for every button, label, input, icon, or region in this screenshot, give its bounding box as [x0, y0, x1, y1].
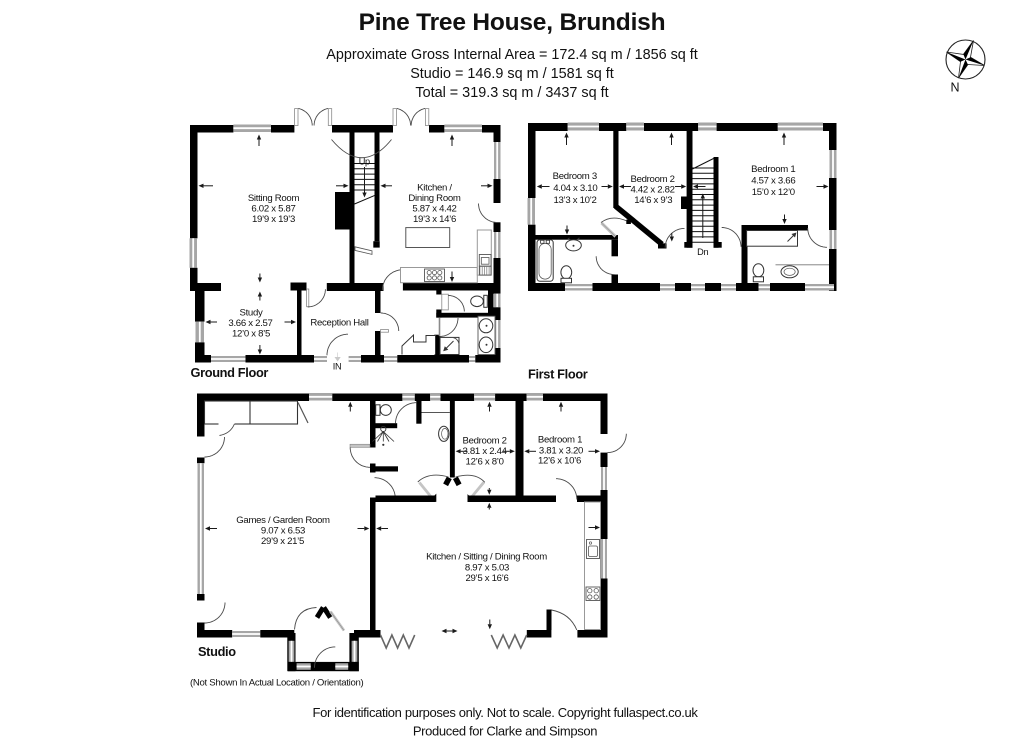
svg-text:13’3 x 10’2: 13’3 x 10’2 [553, 195, 596, 206]
svg-text:Dining Room: Dining Room [408, 193, 460, 204]
svg-text:First Floor: First Floor [528, 367, 588, 382]
svg-text:N: N [950, 81, 959, 95]
svg-text:6.02 x 5.87: 6.02 x 5.87 [251, 204, 295, 215]
svg-text:15’0 x 12’0: 15’0 x 12’0 [752, 187, 795, 198]
svg-text:4.42 x 2.82: 4.42 x 2.82 [631, 185, 675, 196]
svg-text:Produced for Clarke and Simpso: Produced for Clarke and Simpson [413, 724, 597, 739]
svg-text:Studio = 146.9 sq m / 1581 sq: Studio = 146.9 sq m / 1581 sq ft [410, 66, 614, 82]
svg-text:Sitting Room: Sitting Room [248, 193, 300, 204]
svg-text:Up: Up [359, 157, 370, 167]
svg-text:12’6 x 10’6: 12’6 x 10’6 [538, 456, 581, 467]
svg-text:Reception Hall: Reception Hall [310, 318, 368, 329]
svg-text:3.66 x 2.57: 3.66 x 2.57 [228, 318, 272, 329]
svg-text:19’9 x 19’3: 19’9 x 19’3 [252, 214, 295, 225]
svg-text:Bedroom 2: Bedroom 2 [462, 435, 506, 446]
svg-text:Kitchen /: Kitchen / [417, 183, 452, 194]
svg-text:5.87 x 4.42: 5.87 x 4.42 [412, 204, 456, 215]
svg-text:Kitchen / Sitting / Dining Roo: Kitchen / Sitting / Dining Room [426, 552, 547, 563]
svg-text:Bedroom 1: Bedroom 1 [538, 435, 582, 446]
svg-text:(Not Shown In Actual Location: (Not Shown In Actual Location / Orientat… [190, 677, 364, 688]
svg-text:Ground Floor: Ground Floor [191, 365, 269, 380]
svg-text:Bedroom 1: Bedroom 1 [751, 164, 795, 175]
svg-text:4.04 x 3.10: 4.04 x 3.10 [553, 183, 597, 194]
svg-text:Studio: Studio [198, 644, 236, 659]
svg-text:8.97 x 5.03: 8.97 x 5.03 [465, 562, 509, 573]
svg-text:Approximate Gross Internal Are: Approximate Gross Internal Area = 172.4 … [326, 47, 698, 63]
svg-text:29’5 x 16’6: 29’5 x 16’6 [465, 573, 508, 584]
svg-text:Games / Garden Room: Games / Garden Room [236, 515, 330, 526]
svg-text:Dn: Dn [697, 247, 708, 257]
svg-text:Study: Study [239, 308, 263, 319]
svg-text:12’0 x 8’5: 12’0 x 8’5 [232, 329, 270, 340]
svg-text:For identification purposes on: For identification purposes only. Not to… [312, 705, 698, 720]
svg-text:29’9 x 21’5: 29’9 x 21’5 [261, 536, 304, 547]
svg-text:Total = 319.3 sq m / 3437 sq f: Total = 319.3 sq m / 3437 sq ft [415, 85, 608, 101]
svg-text:IN: IN [333, 362, 342, 372]
svg-text:12’6 x 8’0: 12’6 x 8’0 [466, 456, 504, 467]
svg-text:Bedroom 2: Bedroom 2 [630, 174, 674, 185]
svg-text:Bedroom 3: Bedroom 3 [553, 171, 597, 182]
svg-text:14’6 x 9’3: 14’6 x 9’3 [634, 195, 672, 206]
svg-text:4.57 x 3.66: 4.57 x 3.66 [751, 176, 795, 187]
svg-text:19’3 x 14’6: 19’3 x 14’6 [413, 214, 456, 225]
svg-text:9.07 x 6.53: 9.07 x 6.53 [261, 525, 305, 536]
svg-text:Pine Tree House, Brundish: Pine Tree House, Brundish [359, 9, 666, 36]
svg-text:3.81 x 2.44: 3.81 x 2.44 [463, 446, 508, 457]
